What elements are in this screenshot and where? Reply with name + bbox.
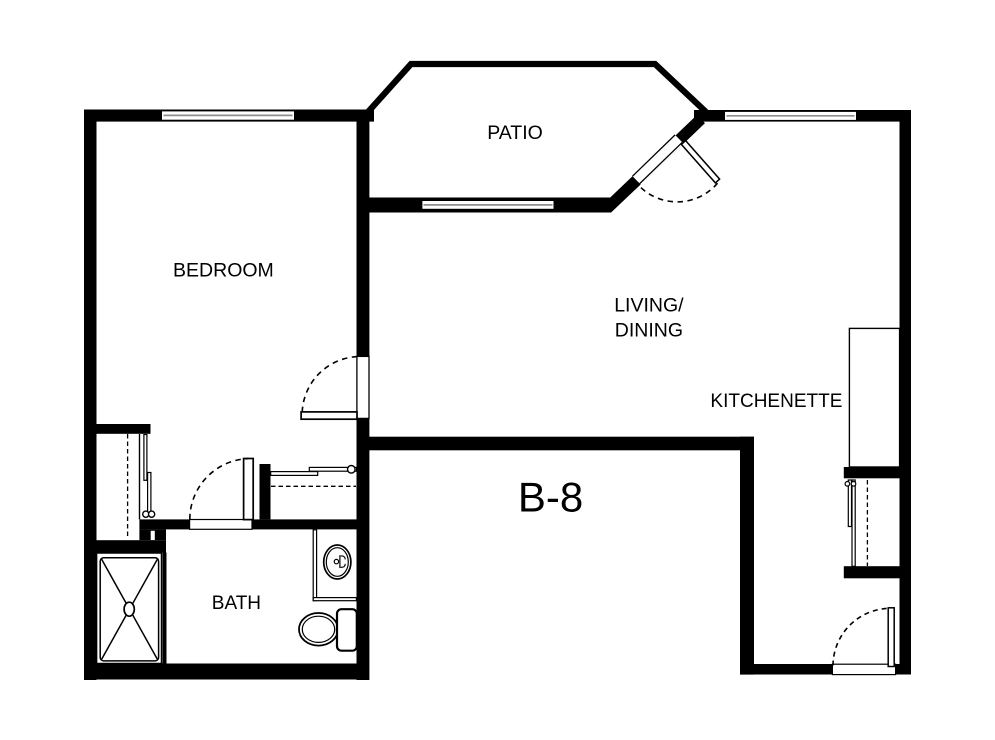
svg-text:DINING: DINING	[615, 320, 683, 342]
svg-text:KITCHENETTE: KITCHENETTE	[710, 391, 842, 412]
svg-text:BEDROOM: BEDROOM	[173, 260, 274, 282]
svg-text:B-8: B-8	[518, 474, 583, 521]
svg-text:BATH: BATH	[212, 593, 261, 614]
svg-text:PATIO: PATIO	[487, 122, 543, 144]
svg-text:LIVING/: LIVING/	[614, 295, 684, 317]
